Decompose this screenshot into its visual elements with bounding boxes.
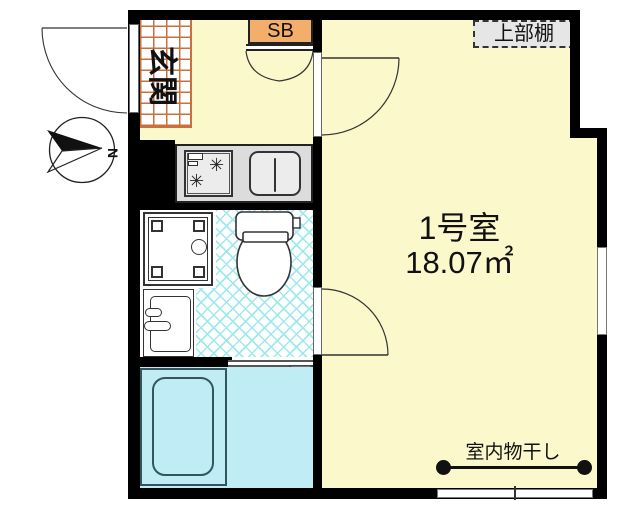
washer-corner — [151, 220, 163, 232]
wall-step — [570, 128, 607, 138]
laundry-pole-label: 室内物干し — [398, 437, 628, 464]
washer-corner — [193, 266, 205, 278]
entrance-label: 玄関 — [144, 43, 178, 109]
toilet — [233, 208, 303, 300]
laundry-pole-end — [436, 460, 451, 475]
window-right — [597, 247, 607, 335]
compass-icon: N — [44, 114, 139, 189]
vanity-faucet-handle — [145, 308, 162, 317]
washroom-door-swing — [313, 285, 398, 360]
laundry-pole — [443, 466, 584, 469]
washing-machine — [143, 212, 213, 286]
room-name: 1号室 — [322, 211, 597, 246]
wall-right-upper — [570, 10, 580, 138]
laundry-pole-end — [577, 460, 592, 475]
washer-corner — [193, 220, 205, 232]
burner-icon: ✳ — [189, 172, 204, 190]
room-area: 18.07㎡ — [322, 246, 597, 280]
kitchen-faucet — [274, 158, 276, 192]
floor-plan: 玄関 ✳ ✳ SB — [0, 0, 640, 510]
shoe-box-door-swing — [246, 51, 313, 84]
bathtub — [152, 377, 214, 476]
entrance-door-swing — [38, 22, 143, 118]
washer-corner — [151, 266, 163, 278]
vanity-faucet — [144, 321, 171, 331]
shoe-box-shelf — [246, 44, 313, 51]
stove-grill — [188, 153, 203, 160]
washer-dial — [191, 239, 207, 255]
shoe-box: SB — [248, 20, 313, 44]
main-room-upper-door-swing — [313, 50, 405, 142]
upper-shelf: 上部棚 — [473, 20, 575, 48]
stove-grill-knob — [188, 161, 198, 166]
wall-top — [128, 10, 580, 20]
main-room-label: 1号室 18.07㎡ — [322, 211, 597, 280]
window-bottom-tick — [514, 486, 516, 500]
compass-north-label: N — [105, 148, 121, 158]
burner-icon: ✳ — [209, 156, 224, 174]
